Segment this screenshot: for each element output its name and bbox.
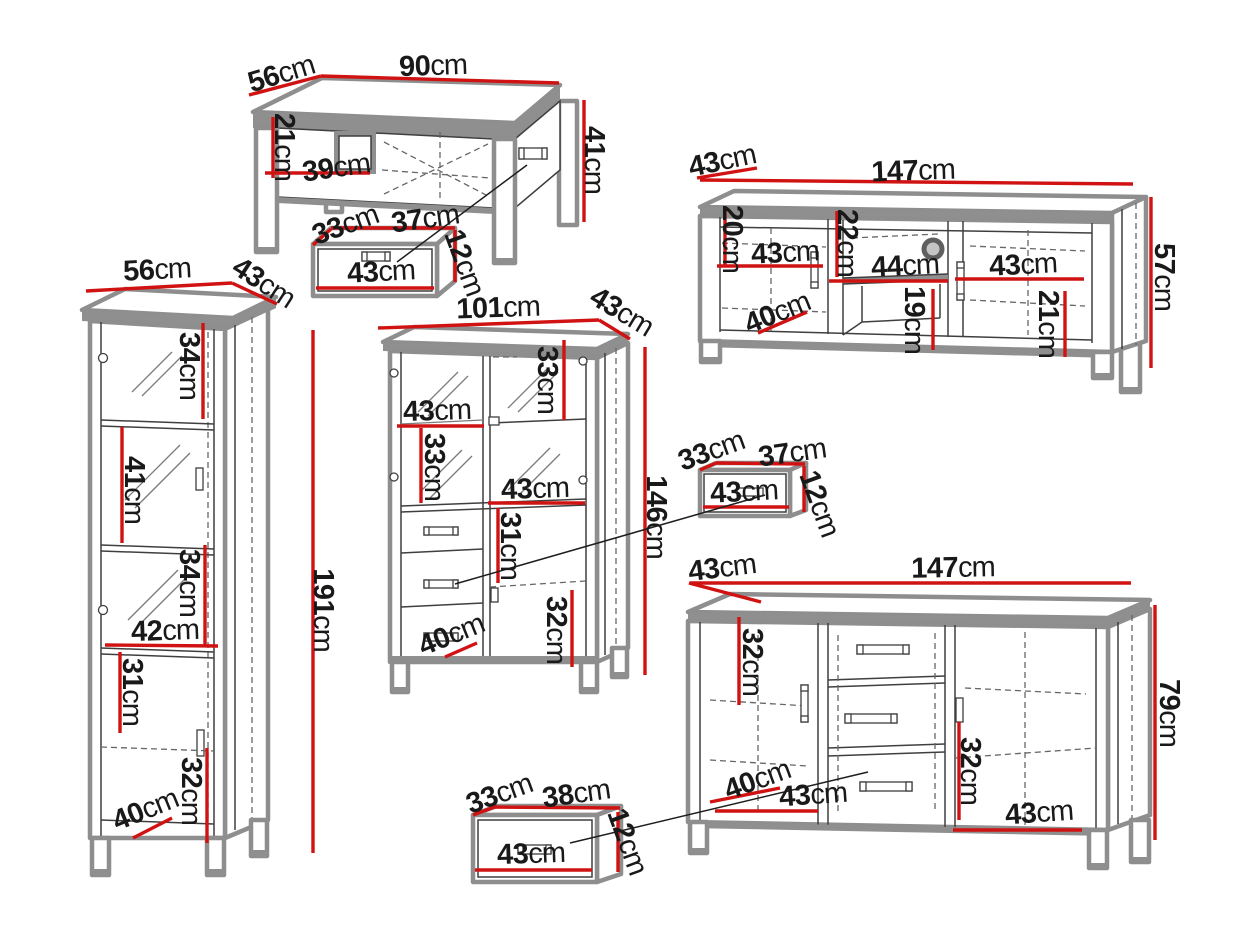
coffee-table-width-label: 90cm <box>399 49 468 83</box>
display-cabinet-mid-inner-height-label: 31cm <box>494 512 526 580</box>
drawer-box-middle-front-width-label: 43cm <box>709 474 779 510</box>
sideboard-front-right-leg <box>1089 830 1107 868</box>
tall-cabinet-hinge <box>99 354 108 363</box>
display-cabinet-width-label: 101cm <box>456 291 541 326</box>
tv-stand-left-inner-width-label: 43cm <box>750 235 820 271</box>
sideboard-height-label: 79cm <box>1153 679 1185 747</box>
display-cabinet-door-knob <box>489 417 499 425</box>
tall-cabinet-top-section-label: 34cm <box>173 332 205 400</box>
tall-cabinet-fourth-section-label: 31cm <box>116 658 148 726</box>
furniture-dimension-diagram: 56cm 90cm 41cm 21cm 39cm 33cm 37cm 12cm … <box>0 0 1257 943</box>
tv-stand-right-inner-height-label: 21cm <box>1032 290 1064 358</box>
tall-cabinet-hinge <box>99 606 108 615</box>
sideboard-left-inner-width-label: 43cm <box>778 777 848 814</box>
sideboard-left-door-handle <box>801 685 808 722</box>
display-cabinet-hinge <box>579 357 587 365</box>
tv-stand-mid-lower-height-label: 19cm <box>898 286 930 354</box>
tall-cabinet-width-label: 56cm <box>122 252 192 288</box>
coffee-table-front-right-leg <box>494 139 515 263</box>
display-cabinet-hinge <box>579 476 587 484</box>
tall-cabinet-inner-width-label: 42cm <box>131 614 200 648</box>
display-cabinet-height-label: 146cm <box>640 475 672 559</box>
sideboard-left-inner-height-label: 32cm <box>736 628 768 696</box>
coffee-table-inner-height-label: 21cm <box>268 113 300 181</box>
display-cabinet-right-lower-height-label: 32cm <box>540 596 572 664</box>
tv-stand-right-door-handle <box>957 262 964 300</box>
sideboard-right-door-handle <box>956 698 963 722</box>
tv-stand-mid-inner-width-label: 44cm <box>870 248 940 284</box>
diagram-canvas: 56cm 90cm 41cm 21cm 39cm 33cm 37cm 12cm … <box>0 0 1257 943</box>
tall-cabinet-lower-door-handle <box>197 730 204 756</box>
display-cabinet-hinge <box>390 473 398 481</box>
drawer-box-bottom-front-width-label: 43cm <box>497 837 566 871</box>
tv-stand-height-label: 57cm <box>1148 243 1180 311</box>
tall-cabinet-third-section-label: 34cm <box>173 549 205 617</box>
tall-cabinet-door-handle <box>196 468 203 490</box>
tv-stand-left-inner-height-label: 20cm <box>716 205 748 273</box>
drawer-box-top-front-width-label: 43cm <box>346 254 416 290</box>
display-cabinet-hinge <box>390 369 398 377</box>
tv-stand-mid-inner-height-label: 22cm <box>831 209 863 277</box>
display-cabinet-lower-door-handle <box>491 588 498 602</box>
tall-cabinet-side-face <box>225 309 268 838</box>
sideboard-right-inner-width-label: 43cm <box>1004 795 1074 832</box>
tv-stand-side-face <box>1112 197 1146 352</box>
sideboard-right-inner-height-label: 32cm <box>954 737 986 805</box>
coffee-table-height-label: 41cm <box>578 126 610 194</box>
display-cabinet-left-inner-height-label: 33cm <box>418 433 450 501</box>
tv-stand-depth-label: 43cm <box>686 138 759 183</box>
tv-stand-width-label: 147cm <box>871 154 956 189</box>
tv-stand-back-right-leg <box>1121 344 1140 392</box>
display-cabinet-right-upper-height-label: 33cm <box>531 346 563 414</box>
sideboard-width-label: 147cm <box>911 551 995 584</box>
tall-cabinet-height-label: 191cm <box>307 568 339 652</box>
coffee-table-back-right-leg <box>559 101 577 225</box>
display-cabinet-mid-inner-width-label: 43cm <box>501 472 570 506</box>
sideboard-side-face <box>1108 609 1150 830</box>
tall-cabinet-bottom-section-label: 32cm <box>175 757 207 825</box>
display-cabinet-side-face <box>597 343 628 662</box>
sideboard-back-right-leg <box>1131 820 1149 862</box>
sideboard-drawing <box>688 583 1155 868</box>
tall-cabinet-second-section-label: 41cm <box>118 456 150 524</box>
display-cabinet-left-inner-width-label: 43cm <box>403 394 472 428</box>
tv-stand-right-inner-width-label: 43cm <box>988 247 1058 283</box>
